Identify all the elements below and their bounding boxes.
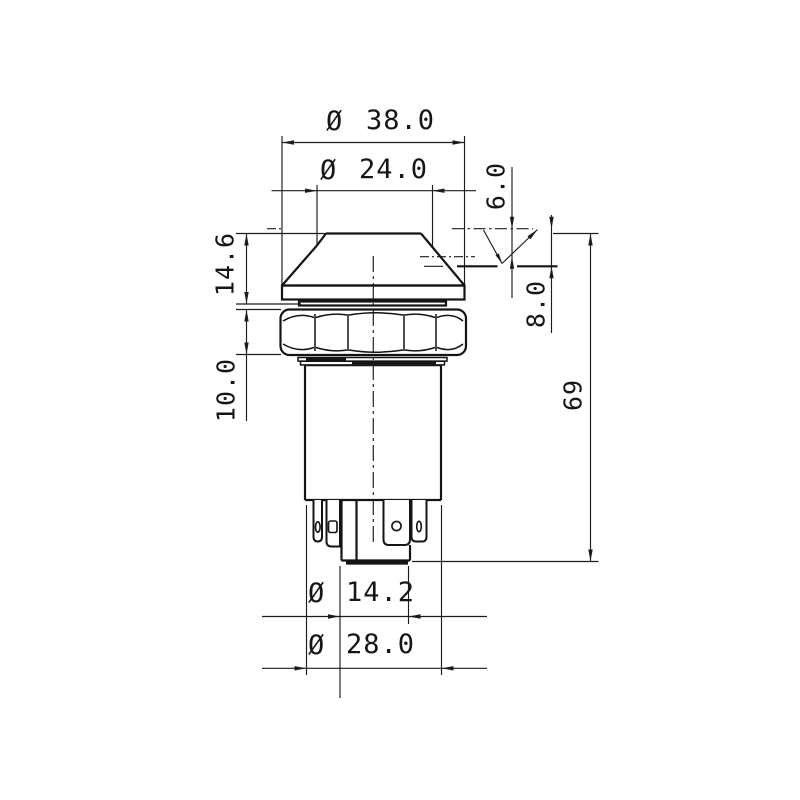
dim-8-0-value: 8.0 (524, 280, 549, 328)
dim-38-diameter-symbol: Ø (326, 108, 343, 135)
dim-28-0-value: 28.0 (346, 631, 415, 658)
dim-24-diameter-symbol: Ø (320, 157, 337, 184)
dim-24-value: 24.0 (359, 156, 428, 183)
dim-28-0-diameter-symbol: Ø (308, 632, 325, 659)
dim-6-0-value: 6.0 (484, 162, 509, 210)
lock-washer (298, 358, 447, 365)
dim-14-2-value: 14.2 (346, 579, 415, 606)
dimension-diameter-24 (272, 185, 477, 246)
dim-14-2-diameter-symbol: Ø (308, 580, 325, 607)
upper-washer (299, 302, 446, 306)
dim-38-value: 38.0 (366, 107, 435, 134)
terminal-pins (314, 500, 427, 547)
drawing-page: { "symbols": { "diameter": "Ø" }, "dimen… (0, 0, 800, 800)
technical-drawing: Ø 38.0 Ø 24.0 14.6 10.0 6.0 8.0 69 Ø 14.… (0, 0, 800, 800)
dim-14-6-value: 14.6 (213, 232, 238, 296)
dim-10-0-value: 10.0 (214, 358, 239, 422)
dimension-nut-height-10-0 (236, 310, 281, 422)
dim-69-value: 69 (561, 379, 586, 411)
